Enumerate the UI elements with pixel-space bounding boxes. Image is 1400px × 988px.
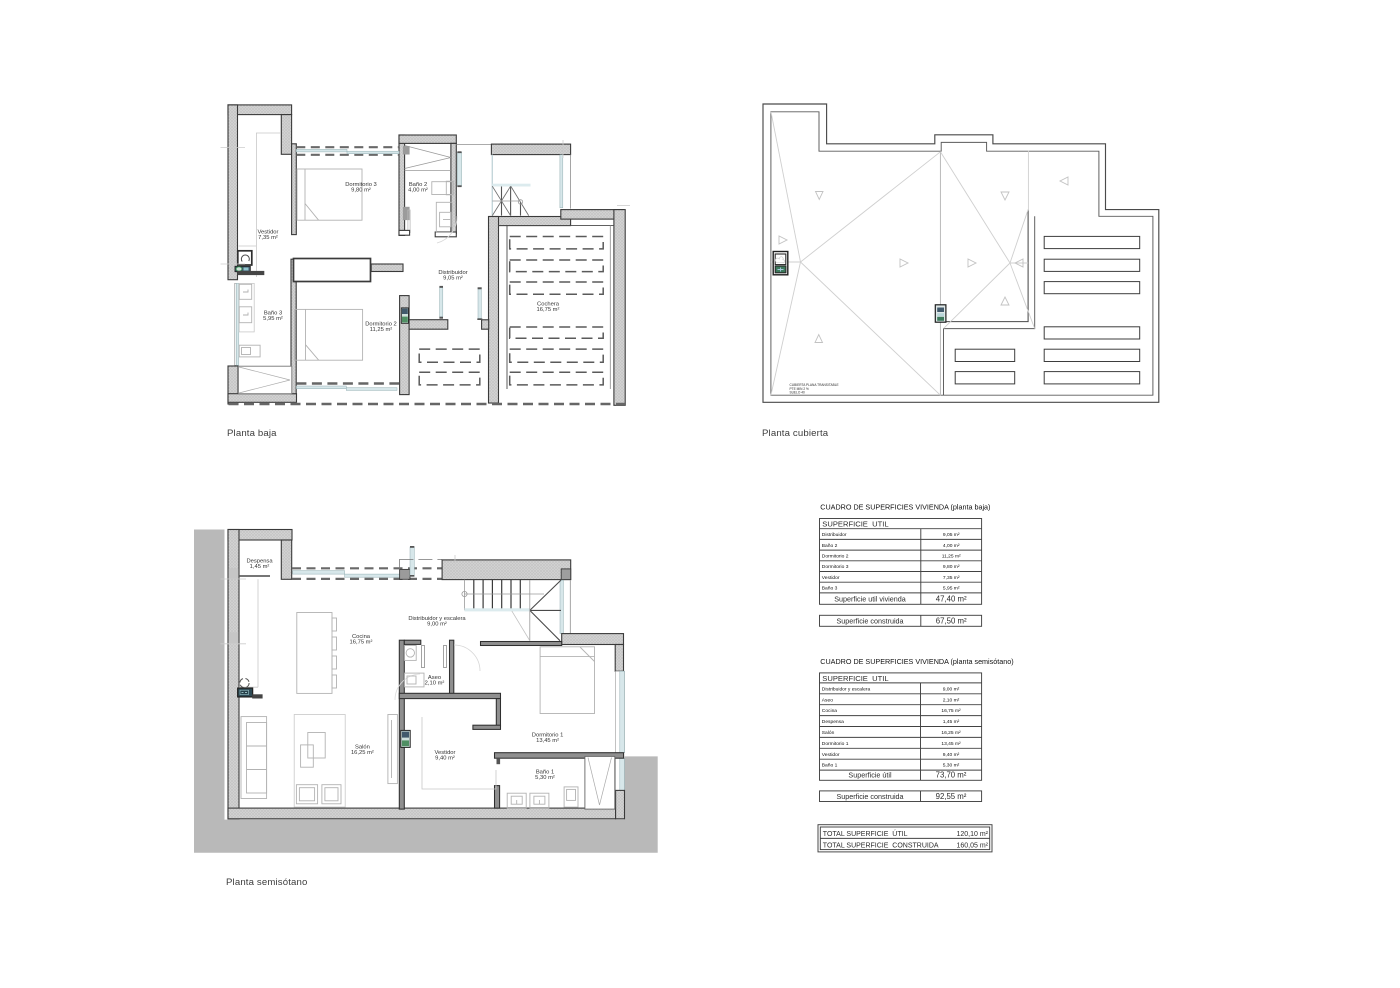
svg-text:4,00 m²: 4,00 m² bbox=[408, 188, 428, 194]
svg-text:16,75 m²: 16,75 m² bbox=[350, 640, 373, 646]
svg-text:9,00 m²: 9,00 m² bbox=[427, 621, 447, 627]
svg-text:Planta semisótano: Planta semisótano bbox=[226, 877, 307, 888]
svg-text:9,80 m²: 9,80 m² bbox=[943, 564, 960, 570]
svg-text:5,30 m²: 5,30 m² bbox=[535, 775, 555, 781]
svg-text:5,95 m²: 5,95 m² bbox=[943, 586, 960, 592]
svg-text:7,35 m²: 7,35 m² bbox=[258, 235, 278, 241]
svg-text:Dormitorio 2: Dormitorio 2 bbox=[822, 554, 849, 560]
svg-text:CUADRO DE SUPERFICIES VIVIENDA: CUADRO DE SUPERFICIES VIVIENDA (planta s… bbox=[820, 657, 1013, 666]
svg-text:Cocina: Cocina bbox=[822, 708, 838, 714]
svg-text:11,25 m²: 11,25 m² bbox=[942, 554, 961, 560]
svg-text:16,75 m²: 16,75 m² bbox=[537, 307, 560, 313]
svg-text:Vestidor: Vestidor bbox=[822, 752, 840, 758]
svg-text:16,25 m²: 16,25 m² bbox=[941, 730, 961, 736]
svg-text:SUPERFICIE UTIL: SUPERFICIE UTIL bbox=[822, 520, 888, 529]
svg-text:Baño 3: Baño 3 bbox=[822, 586, 838, 592]
svg-text:4,00 m²: 4,00 m² bbox=[943, 543, 960, 549]
svg-text:Dormitorio 3: Dormitorio 3 bbox=[822, 564, 849, 570]
svg-text:73,70 m²: 73,70 m² bbox=[936, 771, 967, 780]
svg-text:16,25 m²: 16,25 m² bbox=[351, 750, 374, 756]
svg-text:47,40 m²: 47,40 m² bbox=[936, 595, 967, 604]
svg-text:160,05 m²: 160,05 m² bbox=[956, 843, 988, 850]
svg-text:Distribuidor: Distribuidor bbox=[822, 532, 847, 538]
svg-text:TOTAL SUPERFICIE ÚTIL: TOTAL SUPERFICIE ÚTIL bbox=[823, 829, 908, 838]
svg-text:Superficie útil: Superficie útil bbox=[848, 771, 892, 780]
svg-text:11,25 m²: 11,25 m² bbox=[370, 327, 393, 333]
svg-text:9,05 m²: 9,05 m² bbox=[443, 276, 463, 282]
svg-text:Planta baja: Planta baja bbox=[227, 428, 277, 439]
svg-text:13,45 m²: 13,45 m² bbox=[941, 741, 961, 747]
svg-text:Baño 1: Baño 1 bbox=[822, 763, 838, 769]
svg-text:Baño 2: Baño 2 bbox=[822, 543, 838, 549]
svg-text:2,10 m²: 2,10 m² bbox=[943, 697, 960, 703]
svg-text:Aseo: Aseo bbox=[822, 697, 833, 703]
svg-text:Superficie construida: Superficie construida bbox=[836, 616, 903, 625]
svg-text:Dormitorio 1: Dormitorio 1 bbox=[822, 741, 849, 747]
svg-text:92,55 m²: 92,55 m² bbox=[936, 792, 967, 801]
svg-text:120,10 m²: 120,10 m² bbox=[956, 831, 988, 838]
svg-text:CUADRO DE SUPERFICIES VIVIENDA: CUADRO DE SUPERFICIES VIVIENDA (planta b… bbox=[820, 503, 990, 512]
svg-text:9,40 m²: 9,40 m² bbox=[435, 755, 455, 761]
svg-text:67,50 m²: 67,50 m² bbox=[936, 617, 967, 626]
svg-text:9,80 m²: 9,80 m² bbox=[351, 188, 371, 194]
svg-text:TOTAL SUPERFICIE CONSTRUIDA: TOTAL SUPERFICIE CONSTRUIDA bbox=[823, 843, 939, 850]
svg-text:Despensa: Despensa bbox=[822, 719, 844, 725]
svg-text:9,05 m²: 9,05 m² bbox=[943, 532, 960, 538]
svg-text:1,45 m²: 1,45 m² bbox=[250, 564, 270, 570]
svg-text:2,10 m²: 2,10 m² bbox=[425, 681, 445, 687]
svg-text:7,35 m²: 7,35 m² bbox=[943, 575, 960, 581]
svg-text:9,00 m²: 9,00 m² bbox=[943, 686, 960, 692]
svg-text:SUPERFICIE UTIL: SUPERFICIE UTIL bbox=[822, 674, 888, 683]
svg-text:Superficie construida: Superficie construida bbox=[836, 792, 903, 801]
svg-text:Superficie util vivienda: Superficie util vivienda bbox=[834, 594, 906, 603]
svg-text:9,40 m²: 9,40 m² bbox=[943, 752, 960, 758]
svg-text:SUELO 40: SUELO 40 bbox=[790, 391, 805, 395]
svg-text:Planta cubierta: Planta cubierta bbox=[762, 428, 829, 439]
svg-text:Vestidor: Vestidor bbox=[822, 575, 840, 581]
svg-text:16,75 m²: 16,75 m² bbox=[941, 708, 961, 714]
svg-text:5,30 m²: 5,30 m² bbox=[943, 763, 960, 769]
svg-text:Distribuidor y escalera: Distribuidor y escalera bbox=[822, 686, 871, 692]
svg-text:Salón: Salón bbox=[822, 730, 835, 736]
svg-text:5,95 m²: 5,95 m² bbox=[263, 316, 283, 322]
svg-text:13,45 m²: 13,45 m² bbox=[536, 738, 559, 744]
svg-text:1,45 m²: 1,45 m² bbox=[943, 719, 960, 725]
